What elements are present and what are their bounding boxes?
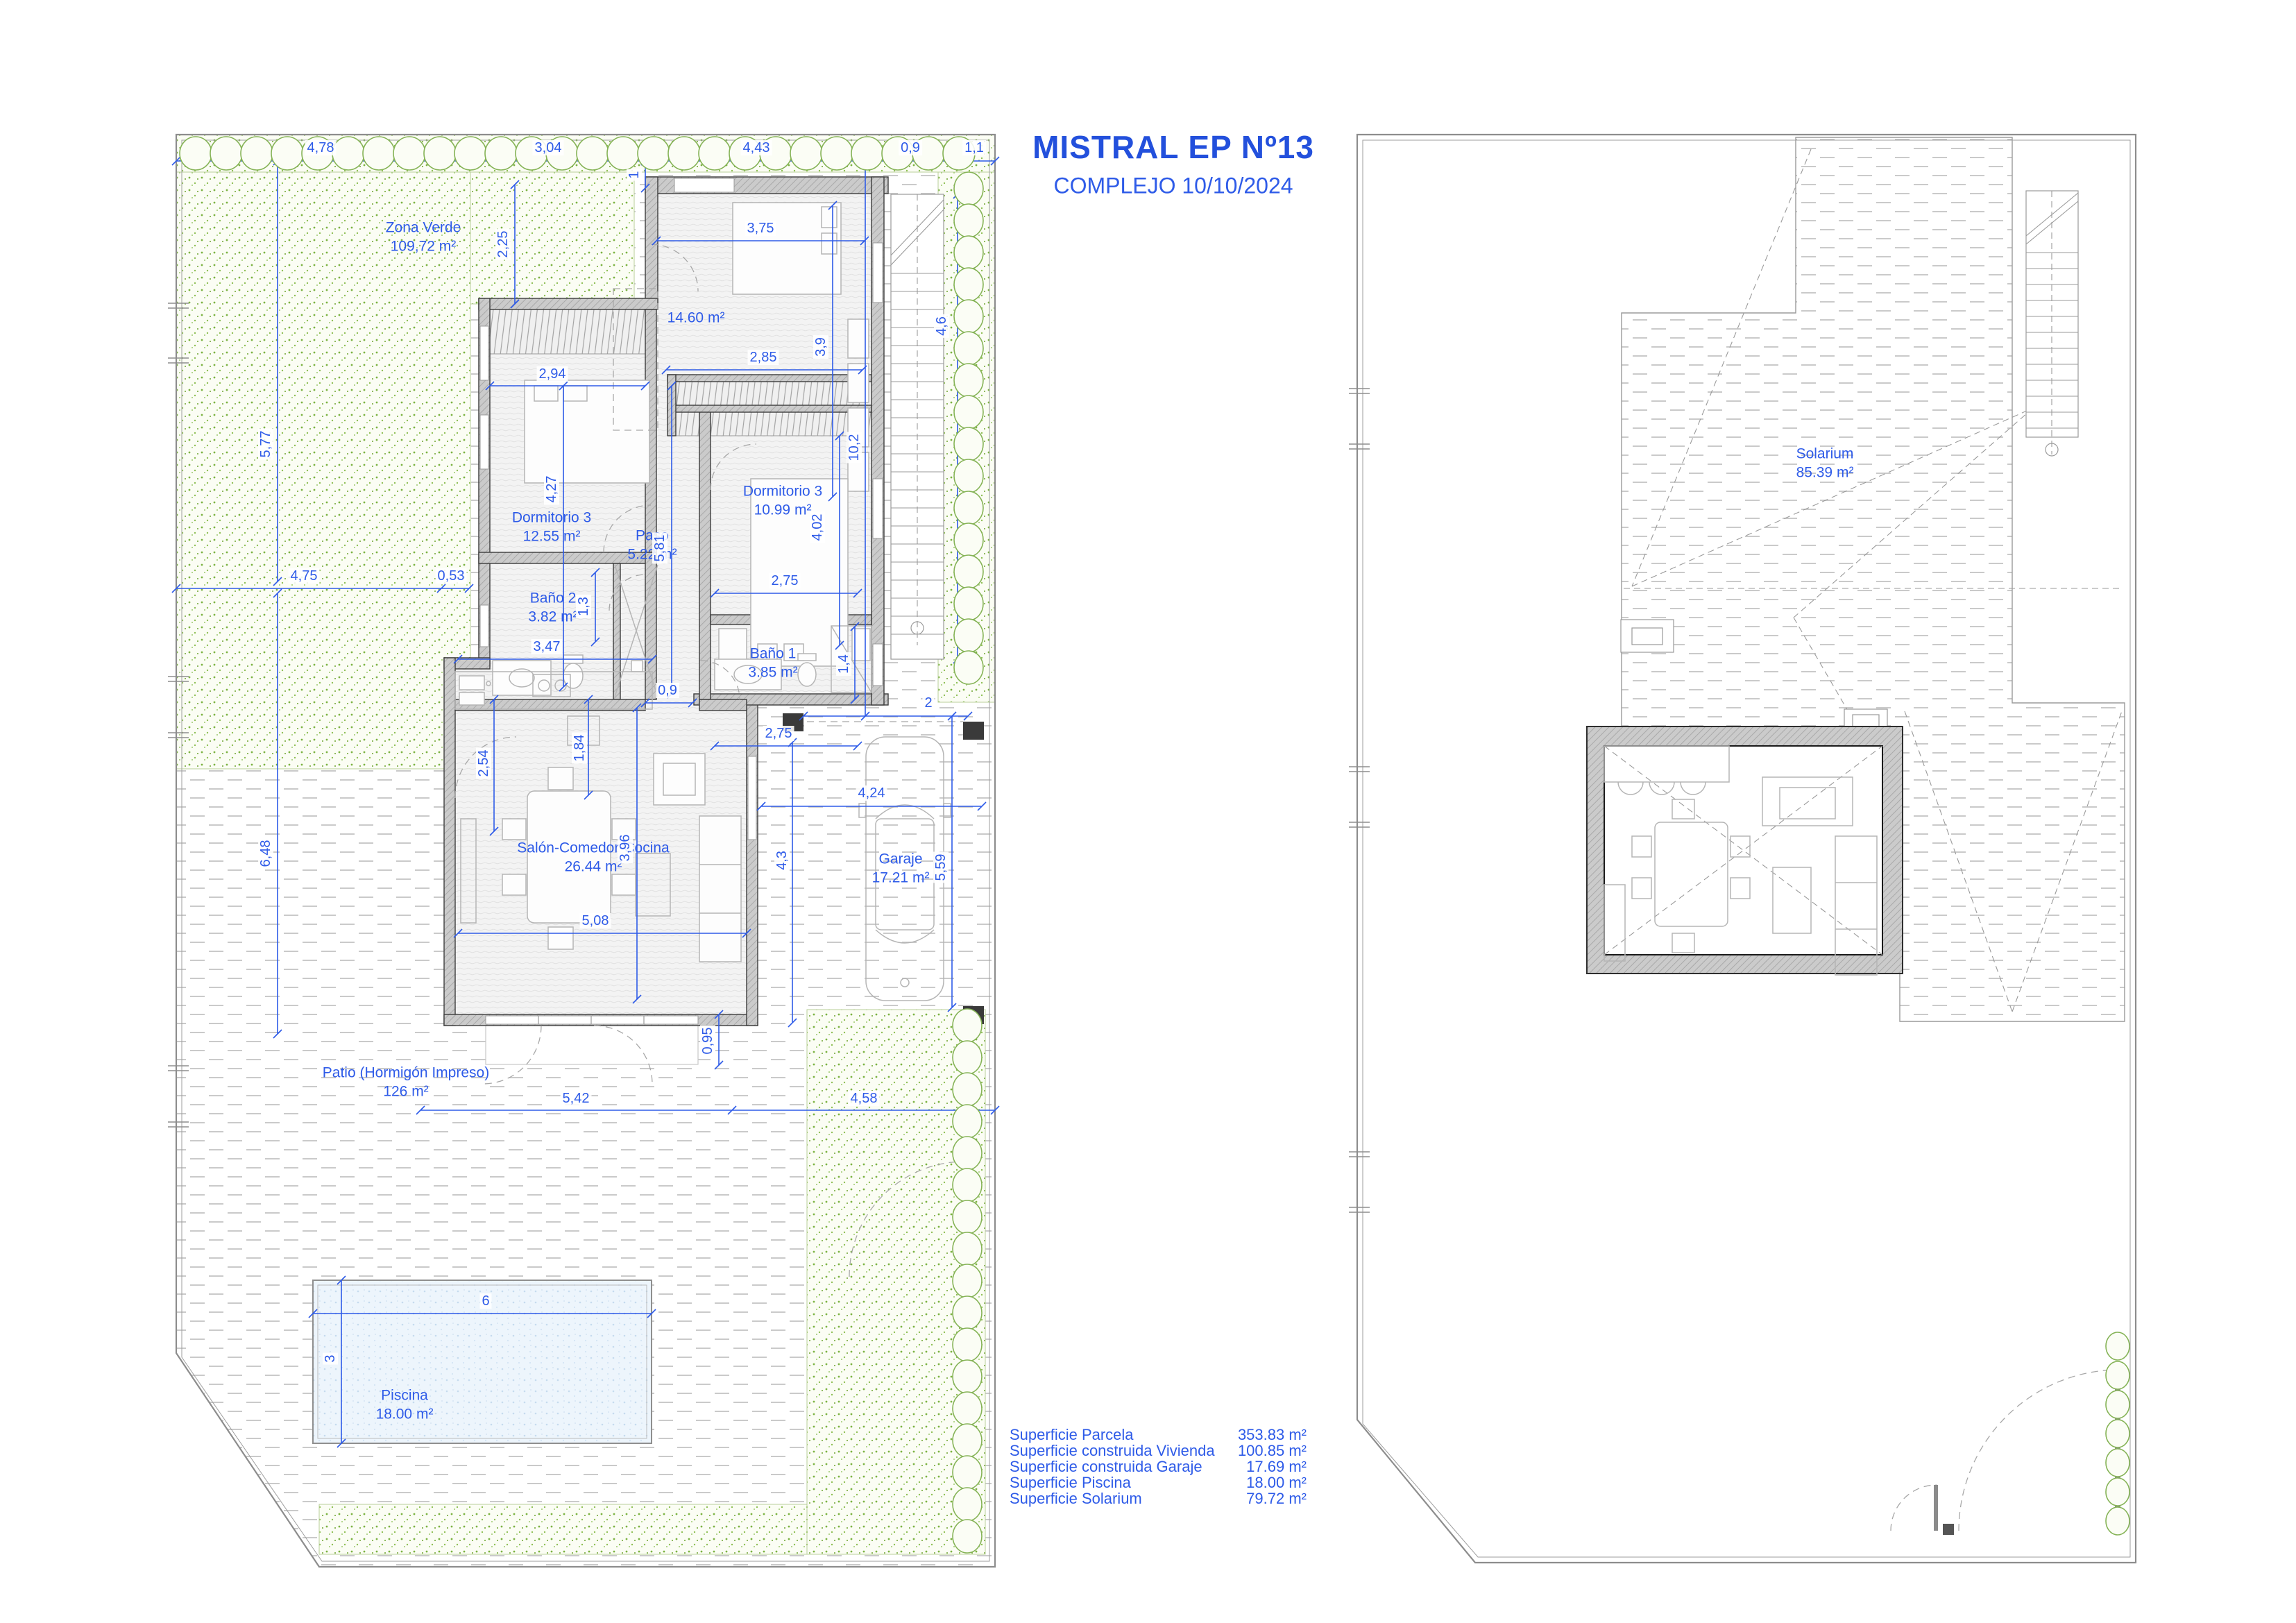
surface-table: Superficie Parcela353.83 m²Superficie co… [1010,1427,1307,1506]
right-plan [1357,135,2136,1563]
zona-verde-area [176,172,470,769]
surface-label: Superficie construida Garaje [1010,1459,1202,1475]
surface-value: 79.72 m² [1246,1490,1307,1506]
surface-table-row: Superficie construida Vivienda100.85 m² [1010,1443,1307,1459]
gates [1891,1370,2120,1535]
surface-value: 100.85 m² [1238,1443,1307,1459]
surface-label: Superficie Solarium [1010,1490,1142,1506]
page-title: MISTRAL EP Nº13 [1032,128,1314,166]
surface-table-row: Superficie Piscina18.00 m² [1010,1475,1307,1490]
surface-label: Superficie construida Vivienda [1010,1443,1215,1459]
page-subtitle: COMPLEJO 10/10/2024 [1053,173,1293,199]
surface-value: 18.00 m² [1246,1475,1307,1490]
left-plan [172,135,999,1567]
floor-plan-drawing [0,0,2296,1623]
gate-pier [963,722,984,740]
gate-pier [783,713,803,731]
surface-value: 17.69 m² [1246,1459,1307,1475]
pool [313,1280,652,1443]
roof-stair [2026,191,2078,456]
surface-value: 353.83 m² [1238,1427,1307,1443]
wardrobe [676,382,871,405]
surface-table-row: Superficie Solarium79.72 m² [1010,1490,1307,1506]
surface-table-row: Superficie construida Garaje17.69 m² [1010,1459,1307,1475]
surface-label: Superficie Piscina [1010,1475,1131,1490]
surface-table-row: Superficie Parcela353.83 m² [1010,1427,1307,1443]
wardrobe [490,309,645,354]
drawing-sheet: MISTRAL EP Nº13 COMPLEJO 10/10/2024 Zona… [0,0,2296,1623]
exterior-stair [891,194,944,659]
porch [486,1026,698,1064]
surface-label: Superficie Parcela [1010,1427,1134,1443]
green-strip-bottom [319,1504,807,1554]
void-room [1587,726,1903,975]
